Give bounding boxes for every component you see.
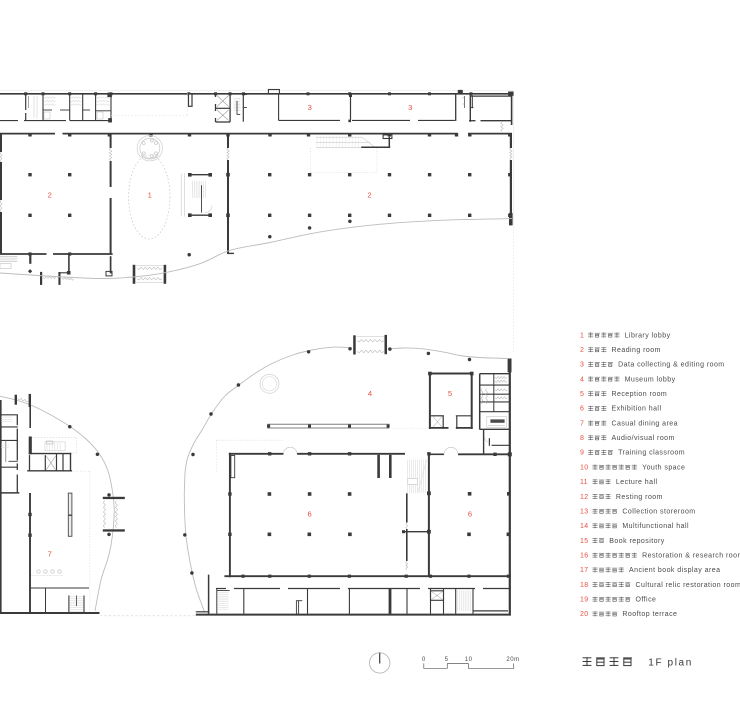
svg-text:0: 0 bbox=[422, 657, 426, 663]
svg-text:5: 5 bbox=[448, 389, 452, 398]
svg-text:4: 4 bbox=[580, 376, 584, 383]
svg-text:7: 7 bbox=[48, 550, 52, 559]
svg-text:2: 2 bbox=[48, 190, 52, 199]
svg-text:Training classroom: Training classroom bbox=[618, 450, 685, 457]
svg-text:13: 13 bbox=[580, 509, 588, 516]
svg-text:19: 19 bbox=[580, 597, 588, 604]
svg-text:Audio/visual room: Audio/visual room bbox=[612, 435, 675, 442]
svg-text:Resting room: Resting room bbox=[616, 494, 663, 501]
svg-text:1F plan: 1F plan bbox=[648, 657, 693, 668]
svg-text:14: 14 bbox=[580, 523, 588, 530]
svg-text:18: 18 bbox=[580, 582, 588, 589]
svg-text:2: 2 bbox=[367, 190, 371, 199]
svg-text:8: 8 bbox=[580, 435, 584, 442]
svg-text:15: 15 bbox=[580, 538, 588, 545]
svg-text:2: 2 bbox=[580, 347, 584, 354]
svg-text:6: 6 bbox=[307, 509, 311, 518]
svg-text:3: 3 bbox=[408, 103, 412, 112]
svg-text:4: 4 bbox=[368, 389, 372, 398]
svg-text:1: 1 bbox=[580, 332, 584, 339]
svg-text:16: 16 bbox=[580, 553, 588, 560]
svg-text:Library lobby: Library lobby bbox=[625, 332, 671, 339]
svg-text:6: 6 bbox=[468, 509, 472, 518]
svg-text:3: 3 bbox=[308, 103, 312, 112]
svg-text:Lecture hall: Lecture hall bbox=[616, 479, 658, 486]
svg-text:Ancient book display area: Ancient book display area bbox=[629, 567, 720, 574]
svg-text:11: 11 bbox=[580, 479, 588, 486]
svg-text:17: 17 bbox=[580, 567, 588, 574]
svg-text:20m: 20m bbox=[506, 657, 519, 663]
svg-text:20: 20 bbox=[580, 611, 588, 618]
svg-text:1: 1 bbox=[148, 190, 152, 199]
svg-text:Data collecting & editing room: Data collecting & editing room bbox=[618, 362, 725, 369]
svg-text:Restoration & research room: Restoration & research room bbox=[642, 553, 740, 560]
svg-text:5: 5 bbox=[580, 391, 584, 398]
svg-text:Book repository: Book repository bbox=[609, 538, 664, 545]
svg-text:Rooftop terrace: Rooftop terrace bbox=[622, 611, 677, 618]
svg-text:Multifunctional hall: Multifunctional hall bbox=[622, 523, 689, 530]
svg-text:Collection storeroom: Collection storeroom bbox=[622, 509, 695, 516]
svg-text:6: 6 bbox=[580, 406, 584, 413]
svg-text:5: 5 bbox=[445, 657, 449, 663]
svg-text:Casual dining area: Casual dining area bbox=[612, 420, 678, 427]
svg-text:Office: Office bbox=[636, 597, 657, 604]
svg-text:Reception room: Reception room bbox=[612, 391, 668, 398]
svg-text:Museum lobby: Museum lobby bbox=[625, 376, 676, 383]
svg-text:Exhibition hall: Exhibition hall bbox=[612, 406, 662, 413]
svg-text:10: 10 bbox=[465, 657, 473, 663]
svg-text:3: 3 bbox=[580, 362, 584, 369]
svg-text:Youth space: Youth space bbox=[642, 464, 685, 471]
svg-text:9: 9 bbox=[580, 450, 584, 457]
svg-text:12: 12 bbox=[580, 494, 588, 501]
svg-text:7: 7 bbox=[580, 420, 584, 427]
svg-text:Cultural relic restoration roo: Cultural relic restoration room bbox=[636, 582, 740, 589]
svg-text:10: 10 bbox=[580, 464, 588, 471]
svg-text:Reading room: Reading room bbox=[612, 347, 661, 354]
